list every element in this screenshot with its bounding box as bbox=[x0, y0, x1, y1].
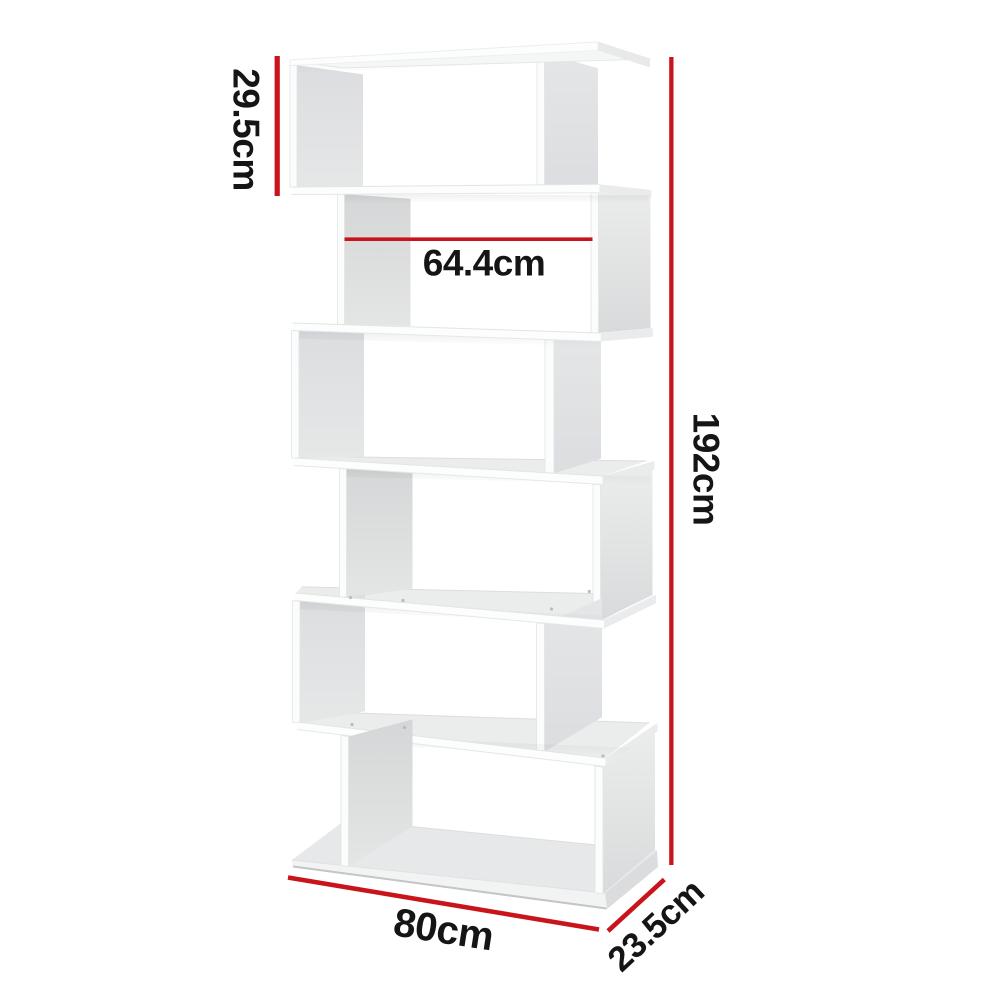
svg-text:29.5cm: 29.5cm bbox=[226, 68, 267, 191]
svg-text:192cm: 192cm bbox=[686, 413, 727, 526]
svg-text:64.4cm: 64.4cm bbox=[423, 243, 546, 284]
